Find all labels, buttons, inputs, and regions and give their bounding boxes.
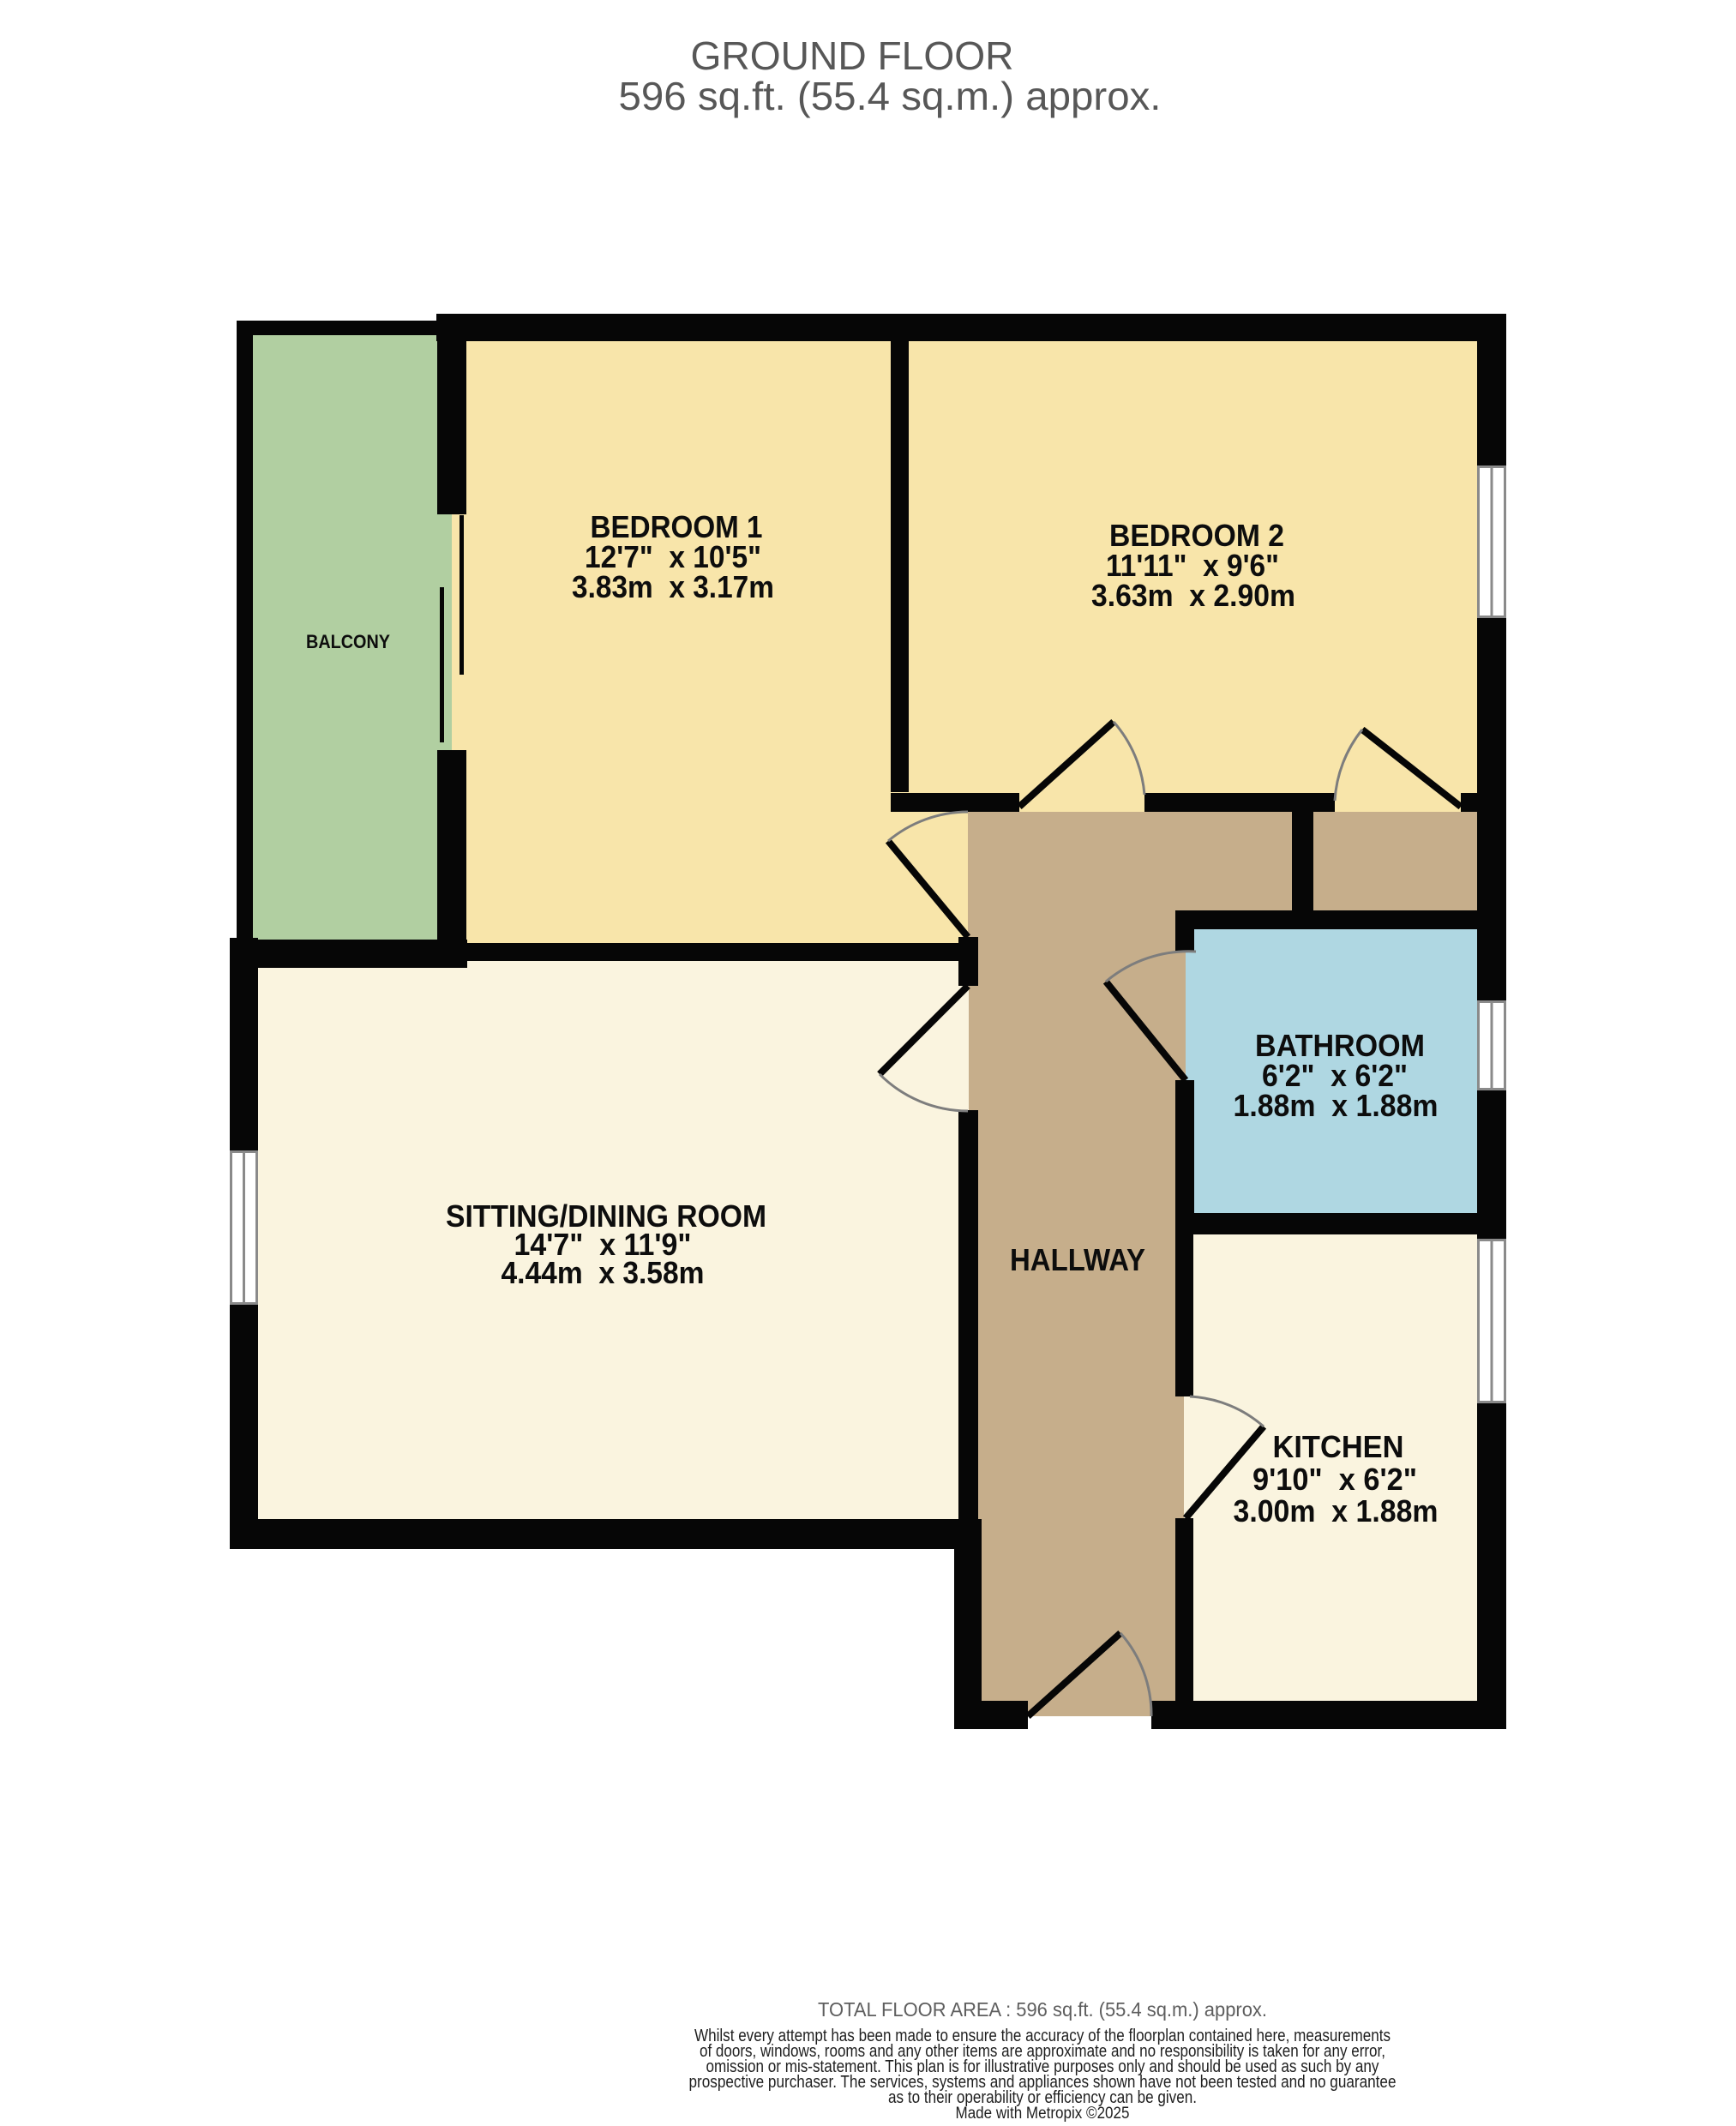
svg-text:3.63m x 2.90m: 3.63m x 2.90m [1091,578,1295,613]
svg-text:GROUND FLOOR: GROUND FLOOR [691,33,1014,78]
svg-text:9'10" x 6'2": 9'10" x 6'2" [1252,1462,1417,1497]
svg-text:3.83m x 3.17m: 3.83m x 3.17m [572,569,774,604]
svg-text:HALLWAY: HALLWAY [1010,1242,1145,1277]
svg-text:4.44m x 3.58m: 4.44m x 3.58m [502,1255,705,1290]
svg-text:BALCONY: BALCONY [306,631,390,652]
svg-text:KITCHEN: KITCHEN [1273,1429,1404,1464]
svg-text:3.00m x 1.88m: 3.00m x 1.88m [1234,1493,1439,1528]
svg-text:Made with Metropix ©2025: Made with Metropix ©2025 [956,2105,1130,2123]
svg-text:TOTAL FLOOR AREA : 596 sq.ft.: TOTAL FLOOR AREA : 596 sq.ft. (55.4 sq.m… [818,1998,1267,2021]
svg-text:1.88m x 1.88m: 1.88m x 1.88m [1234,1088,1439,1123]
svg-text:596 sq.ft. (55.4 sq.m.) approx: 596 sq.ft. (55.4 sq.m.) approx. [619,74,1162,118]
